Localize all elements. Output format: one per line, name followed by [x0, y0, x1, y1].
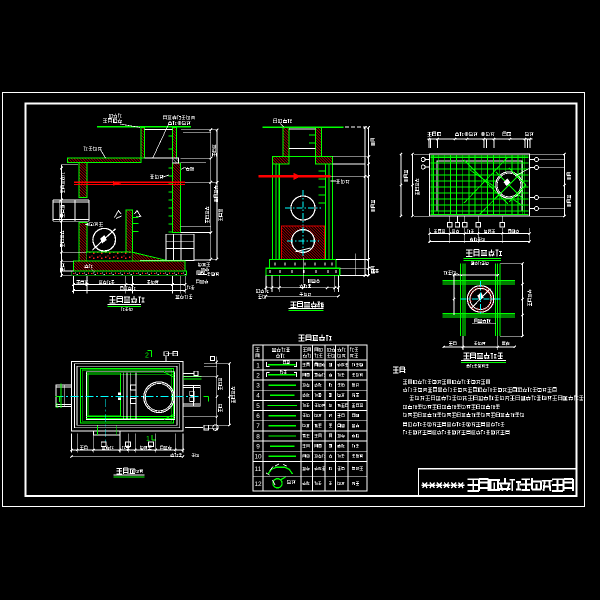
svg-text:11: 11: [255, 466, 262, 473]
svg-text:3: 3: [256, 383, 260, 390]
svg-text:12: 12: [254, 481, 262, 488]
svg-text:5: 5: [256, 403, 260, 410]
svg-text:2: 2: [256, 372, 260, 379]
svg-text:2: 2: [145, 353, 149, 360]
svg-text::: :: [405, 368, 407, 375]
svg-text:4: 4: [256, 393, 260, 400]
svg-text:1: 1: [256, 362, 260, 369]
svg-text:10: 10: [254, 454, 262, 461]
svg-text:8: 8: [256, 433, 260, 440]
svg-text:9: 9: [256, 444, 260, 451]
svg-text:7: 7: [256, 423, 260, 430]
svg-text:6: 6: [256, 413, 260, 420]
svg-text:1: 1: [55, 403, 59, 410]
